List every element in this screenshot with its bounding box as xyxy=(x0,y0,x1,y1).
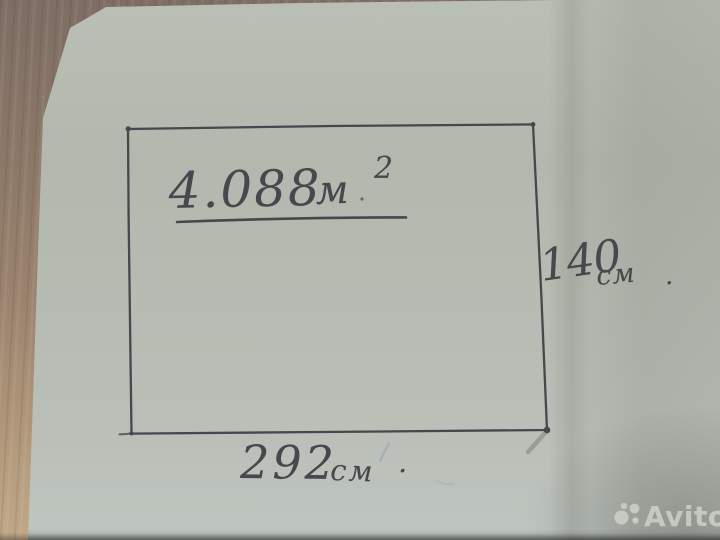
blue-pen-mark xyxy=(380,443,389,461)
area-exponent-text: 2 xyxy=(373,151,393,186)
width-unit-text: см xyxy=(330,453,375,489)
area-unit-text: м xyxy=(315,167,350,214)
width-value-text: 292 xyxy=(239,435,337,490)
avito-watermark: Avito xyxy=(615,500,720,533)
pen-smudge xyxy=(528,433,546,453)
area-value-text: 4.088 xyxy=(167,159,322,220)
corner-dot-top-right xyxy=(531,122,536,127)
width-period-text: . xyxy=(398,445,407,479)
height-unit-text: см xyxy=(595,258,637,292)
photo-bottom-shadow xyxy=(0,533,720,540)
height-dimension-label: 140 см . xyxy=(536,230,673,292)
area-label: 4.088 м 2 xyxy=(167,151,406,222)
pen-dot xyxy=(360,197,363,200)
blue-pen-marks xyxy=(380,443,454,484)
corner-dot-top-left xyxy=(126,126,131,131)
height-period-text: . xyxy=(665,260,674,291)
avito-wordmark: Avito xyxy=(644,500,720,533)
avito-logo-icon xyxy=(615,503,640,525)
corner-dot-bottom-left xyxy=(129,431,133,435)
sketch-overlay: 4.088 м 2 140 см . 292 см . xyxy=(0,0,720,540)
blue-pen-mark xyxy=(437,481,454,484)
width-dimension-label: 292 см . xyxy=(239,435,407,490)
photo-of-paper-sketch: 4.088 м 2 140 см . 292 см . xyxy=(0,0,720,540)
